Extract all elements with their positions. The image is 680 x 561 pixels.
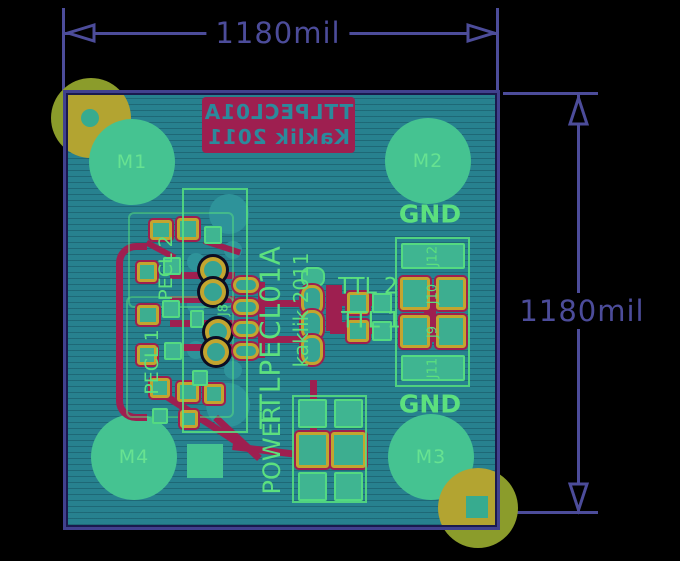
- silk-pecl2-label[interactable]: PECL 2: [155, 235, 177, 300]
- smd-pad[interactable]: [137, 262, 157, 282]
- silk-gnd-top-label[interactable]: GND: [399, 200, 461, 229]
- mounting-hole-m4-label: M4: [119, 446, 149, 468]
- dim-top-label: 1180mil: [206, 15, 349, 51]
- silk-pecl1-label[interactable]: PECL 1: [141, 329, 163, 394]
- smd-pad[interactable]: [152, 408, 168, 424]
- silkscreen-back-block[interactable]: TTLPECL01A Kaklik 2011: [202, 97, 355, 153]
- dim-top-ext-right: [496, 8, 499, 90]
- ic-courtyard-outline: [182, 188, 248, 433]
- header-pin-label-j12: J12: [426, 246, 441, 266]
- dim-top-ext-left: [62, 8, 65, 90]
- dim-right-ext-top: [503, 92, 598, 95]
- mounting-hole-m4[interactable]: M4: [91, 414, 177, 500]
- mounting-hole-m2-label: M2: [413, 150, 443, 172]
- silk-ttl2-label[interactable]: TTL 2: [338, 275, 398, 300]
- silk-author-vertical[interactable]: kaklik 2011: [289, 252, 313, 367]
- fiducial-hole-top-left: [81, 109, 99, 127]
- pcb-board-surface: M1 M2 M3 M4 TTLPECL01A Kaklik 2011: [68, 95, 495, 525]
- mounting-hole-m1-label: M1: [117, 151, 147, 173]
- pcb-viewer-canvas[interactable]: 1180mil 1180mil M1 M2 M3 M4 TTLPECL01A K…: [0, 0, 680, 561]
- header-pin-label-j10: J10: [426, 284, 441, 304]
- mounting-hole-m1[interactable]: M1: [89, 119, 175, 205]
- silk-power-label[interactable]: POWER: [258, 406, 286, 495]
- silkscreen-back-line1: TTLPECL01A: [204, 100, 354, 125]
- smd-pad[interactable]: [164, 342, 182, 360]
- pcb-board[interactable]: M1 M2 M3 M4 TTLPECL01A Kaklik 2011: [63, 90, 500, 530]
- power-connector-outline: [292, 395, 367, 503]
- smd-pad[interactable]: [162, 300, 180, 318]
- copper-square: [187, 444, 223, 478]
- fiducial-hole-bottom-right: [466, 496, 488, 518]
- dim-right-label: 1180mil: [510, 293, 653, 329]
- mounting-hole-m3-label: M3: [416, 446, 446, 468]
- silk-gnd-bottom-label[interactable]: GND: [399, 390, 461, 419]
- header-pin-label-j9: J9: [426, 326, 441, 338]
- silk-title-vertical[interactable]: TTLPECL01A: [254, 245, 287, 429]
- silkscreen-back-line2: Kaklik 2011: [207, 125, 350, 150]
- silk-ttl1-label[interactable]: TTL 1: [341, 309, 401, 334]
- silk-j8-label[interactable]: J8: [217, 304, 232, 316]
- smd-pad[interactable]: [137, 305, 159, 325]
- mounting-hole-m2[interactable]: M2: [385, 118, 471, 204]
- header-pin-label-j11: J11: [426, 358, 441, 378]
